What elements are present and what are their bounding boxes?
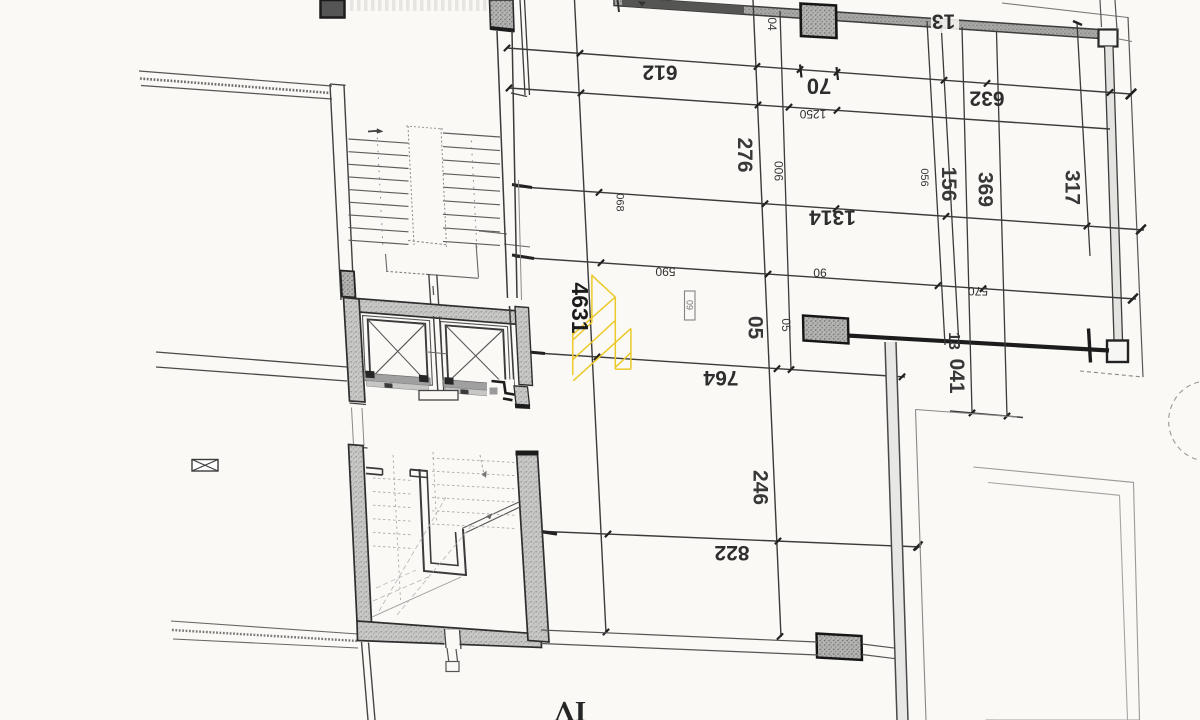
svg-text:006: 006 <box>772 161 786 181</box>
svg-text:05: 05 <box>744 316 767 340</box>
svg-text:068: 068 <box>614 193 626 211</box>
svg-text:590: 590 <box>655 265 675 279</box>
svg-text:13: 13 <box>945 332 962 350</box>
svg-text:317: 317 <box>1061 170 1084 205</box>
svg-text:90: 90 <box>813 266 827 280</box>
svg-text:822: 822 <box>714 541 749 564</box>
svg-text:632: 632 <box>969 87 1004 110</box>
svg-text:570: 570 <box>968 284 988 298</box>
svg-text:1314: 1314 <box>809 206 856 229</box>
svg-text:246: 246 <box>749 470 772 505</box>
svg-text:13: 13 <box>932 10 955 33</box>
svg-text:70: 70 <box>807 74 831 99</box>
svg-text:IV: IV <box>554 695 586 720</box>
svg-text:612: 612 <box>642 61 677 84</box>
svg-text:041: 041 <box>945 358 968 393</box>
svg-text:04: 04 <box>765 17 779 31</box>
svg-text:276: 276 <box>733 137 756 172</box>
svg-text:05: 05 <box>779 318 793 332</box>
svg-text:369: 369 <box>974 172 997 207</box>
svg-text:09: 09 <box>685 300 695 310</box>
svg-text:4631: 4631 <box>567 282 593 333</box>
svg-text:764: 764 <box>703 366 738 389</box>
svg-text:156: 156 <box>937 166 960 201</box>
svg-text:1250: 1250 <box>799 107 826 121</box>
svg-text:056: 056 <box>918 168 930 186</box>
